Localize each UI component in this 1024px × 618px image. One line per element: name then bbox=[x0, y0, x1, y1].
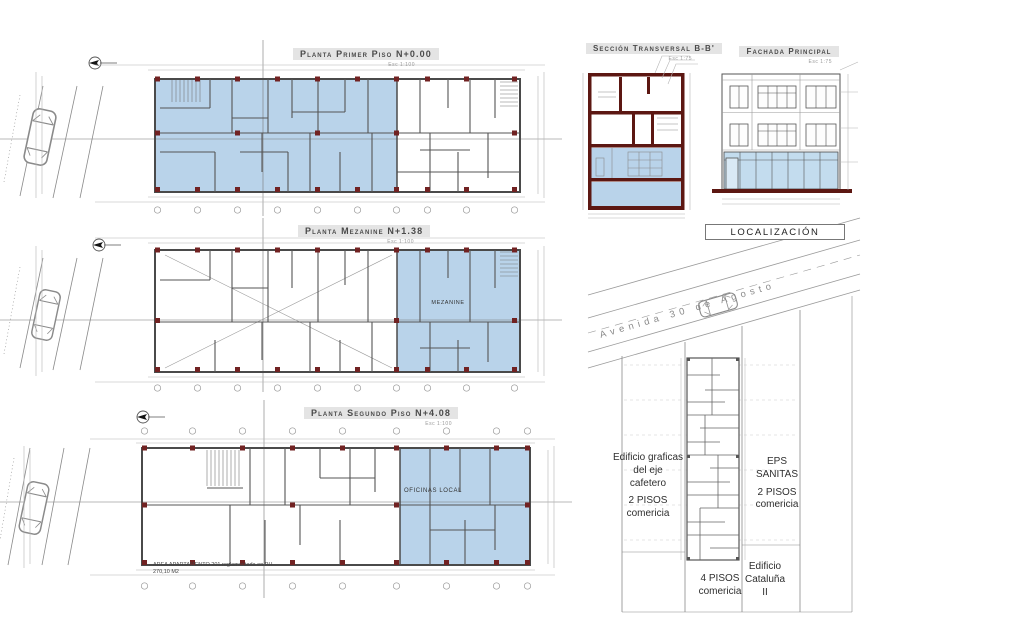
parcel-corner-line: Cataluña bbox=[738, 574, 792, 587]
parcel-left-line: comericia bbox=[604, 508, 692, 521]
plan1-title: Planta Primer Piso N+0.00 bbox=[293, 48, 439, 60]
area-note-line2: 270,10 M2 bbox=[153, 569, 283, 576]
parcel-corner-line: II bbox=[738, 587, 792, 600]
plan3-scale: Esc 1:100 bbox=[300, 421, 462, 427]
parcel-corner-line: Edificio bbox=[738, 561, 792, 574]
facade-title-block: Fachada Principal Esc 1:75 bbox=[736, 41, 842, 65]
plan1-title-block: Planta Primer Piso N+0.00 Esc 1:100 bbox=[293, 44, 425, 68]
parcel-left-line: del eje bbox=[604, 465, 692, 478]
parcel-left-line: cafetero bbox=[604, 478, 692, 491]
facade-scale: Esc 1:75 bbox=[736, 59, 842, 65]
plan2-title: Planta Mezanine N+1.38 bbox=[298, 225, 430, 237]
parcel-label-corner: Edificio Cataluña II bbox=[738, 561, 792, 599]
section-scale: Esc 1:75 bbox=[586, 56, 702, 62]
parcel-right-line: 2 PISOS bbox=[744, 487, 810, 500]
localization-linework bbox=[588, 218, 860, 612]
parcel-left-line: 2 PISOS bbox=[604, 495, 692, 508]
plan3-linework bbox=[0, 400, 572, 598]
plan3-title-block: Planta Segundo Piso N+4.08 Esc 1:100 bbox=[300, 403, 462, 427]
linework-canvas bbox=[0, 0, 1024, 618]
parcel-right-line: SANITAS bbox=[744, 469, 810, 482]
mezanine-room-label: MEZANINE bbox=[415, 300, 481, 306]
plan3-title: Planta Segundo Piso N+4.08 bbox=[304, 407, 458, 419]
plan1-grid-bubbles bbox=[154, 207, 517, 213]
parcel-left-line: Edificio graficas bbox=[604, 452, 692, 465]
facade-title: Fachada Principal bbox=[739, 46, 838, 57]
area-note-line1: AREA APARTAMENTO 201 reglamentada en PH bbox=[153, 562, 283, 569]
parcel-right-line: comericia bbox=[744, 499, 810, 512]
area-note: AREA APARTAMENTO 201 reglamentada en PH … bbox=[153, 562, 283, 577]
parcel-label-left: Edificio graficas del eje cafetero 2 PIS… bbox=[604, 452, 692, 521]
section-title-block: Sección Transversal B-B' Esc 1:75 bbox=[586, 38, 702, 62]
plan2-grid-bubbles bbox=[154, 385, 517, 391]
section-linework bbox=[583, 56, 698, 218]
parcel-right-line: EPS bbox=[744, 456, 810, 469]
architectural-sheet: { "palette": { "plan_fill_blue": "#b9d3e… bbox=[0, 0, 1024, 618]
facade-linework bbox=[712, 62, 858, 204]
oficinas-room-label: OFICINAS LOCAL bbox=[398, 488, 468, 494]
plan2-title-block: Planta Mezanine N+1.38 Esc 1:100 bbox=[298, 221, 424, 245]
plan1-scale: Esc 1:100 bbox=[293, 62, 425, 68]
localization-title: LOCALIZACIÓN bbox=[705, 224, 845, 240]
plan1-linework bbox=[0, 40, 562, 216]
section-title: Sección Transversal B-B' bbox=[586, 43, 722, 54]
parcel-label-right: EPS SANITAS 2 PISOS comericia bbox=[744, 456, 810, 512]
plan2-scale: Esc 1:100 bbox=[298, 239, 424, 245]
